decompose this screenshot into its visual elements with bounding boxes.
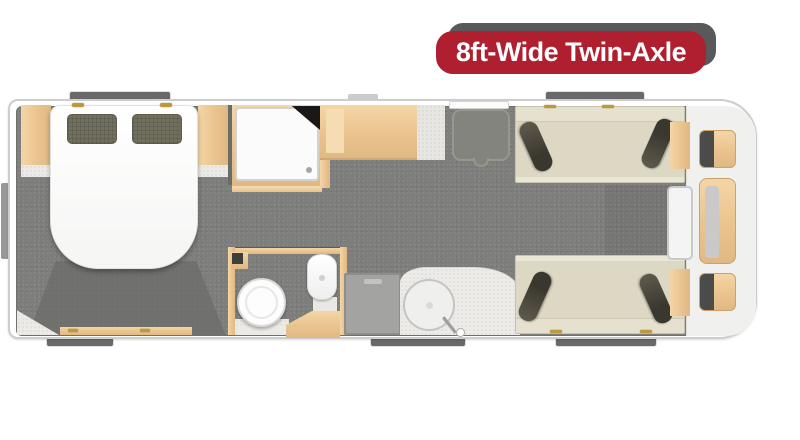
front-chest	[699, 178, 736, 264]
bed-clasp	[160, 103, 172, 107]
front-table-bottom-cushion	[700, 274, 714, 310]
shower-room	[232, 105, 322, 186]
pillow-left	[67, 114, 117, 144]
appliance-handle	[364, 279, 382, 284]
sofa-clasp	[544, 105, 556, 108]
front-table-top	[699, 130, 736, 168]
worktop	[417, 105, 445, 160]
door-catch	[232, 253, 243, 264]
front-table-bottom	[699, 273, 736, 311]
side-table-bottom	[670, 269, 690, 316]
entrance-door-leaf	[449, 101, 509, 109]
door-catch-frame	[231, 252, 248, 269]
side-table-top	[670, 122, 690, 169]
entrance-door-mat	[452, 109, 510, 161]
sofa-clasp	[640, 330, 652, 333]
wardrobe-shelf-notch	[326, 109, 344, 153]
pedestal-basin	[307, 254, 337, 300]
bedroom-bottom-unit	[60, 327, 192, 335]
tap-knob	[456, 328, 465, 337]
center-table	[667, 186, 693, 260]
bedside-cabinet-right	[198, 105, 228, 165]
badge-label: 8ft-Wide Twin-Axle	[456, 37, 686, 68]
bedside-shelf-right	[198, 165, 228, 177]
sofa-clasp	[550, 330, 562, 333]
toilet-seat-ring	[245, 286, 278, 319]
unit-clasp	[140, 329, 150, 332]
sink-plug	[426, 302, 433, 309]
bed-clasp	[72, 103, 84, 107]
pillow-right	[132, 114, 182, 144]
sofa-clasp	[602, 105, 614, 108]
front-table-top-cushion	[700, 131, 714, 167]
bedside-cabinet-left	[21, 105, 51, 165]
caravan-body	[8, 99, 757, 339]
toilet	[237, 278, 286, 327]
bedside-shelf-left	[21, 165, 51, 177]
front-chest-runner	[705, 186, 719, 258]
shower-threshold	[232, 186, 322, 192]
unit-clasp	[68, 329, 78, 332]
kitchen-appliance	[344, 273, 401, 335]
model-badge: 8ft-Wide Twin-Axle	[436, 31, 706, 74]
sofa-bottom-edge	[516, 256, 684, 261]
basin-plug	[319, 275, 325, 281]
wardrobe-unit	[320, 105, 417, 160]
sofa-top-edge	[516, 177, 684, 182]
caravan-floorplan-figure: 8ft-Wide Twin-Axle	[0, 0, 800, 440]
shower-drain	[306, 167, 312, 173]
